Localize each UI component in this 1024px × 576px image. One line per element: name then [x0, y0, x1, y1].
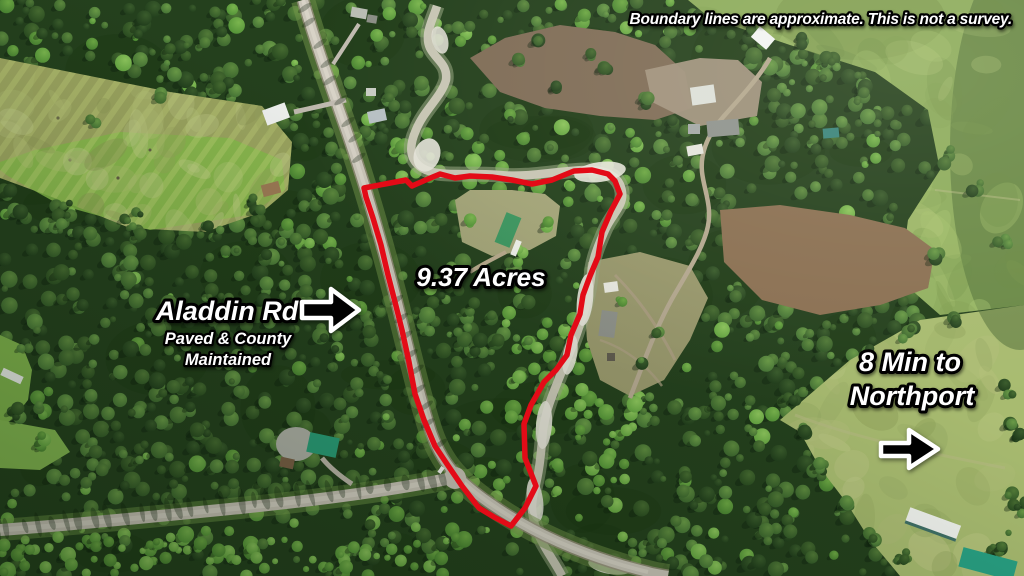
destination-line1: 8 Min to [859, 347, 961, 377]
aerial-property-photo: Boundary lines are approximate. This is … [0, 0, 1024, 576]
road-detail-line2: Maintained [185, 351, 272, 369]
acreage-label: 9.37 Acres [416, 262, 545, 292]
destination-line2: Northport [850, 381, 975, 411]
scene-svg: Boundary lines are approximate. This is … [0, 0, 1024, 576]
road-name-label: Aladdin Rd [155, 296, 299, 326]
road-detail-line1: Paved & County [165, 330, 292, 348]
disclaimer-text: Boundary lines are approximate. This is … [630, 11, 1012, 28]
